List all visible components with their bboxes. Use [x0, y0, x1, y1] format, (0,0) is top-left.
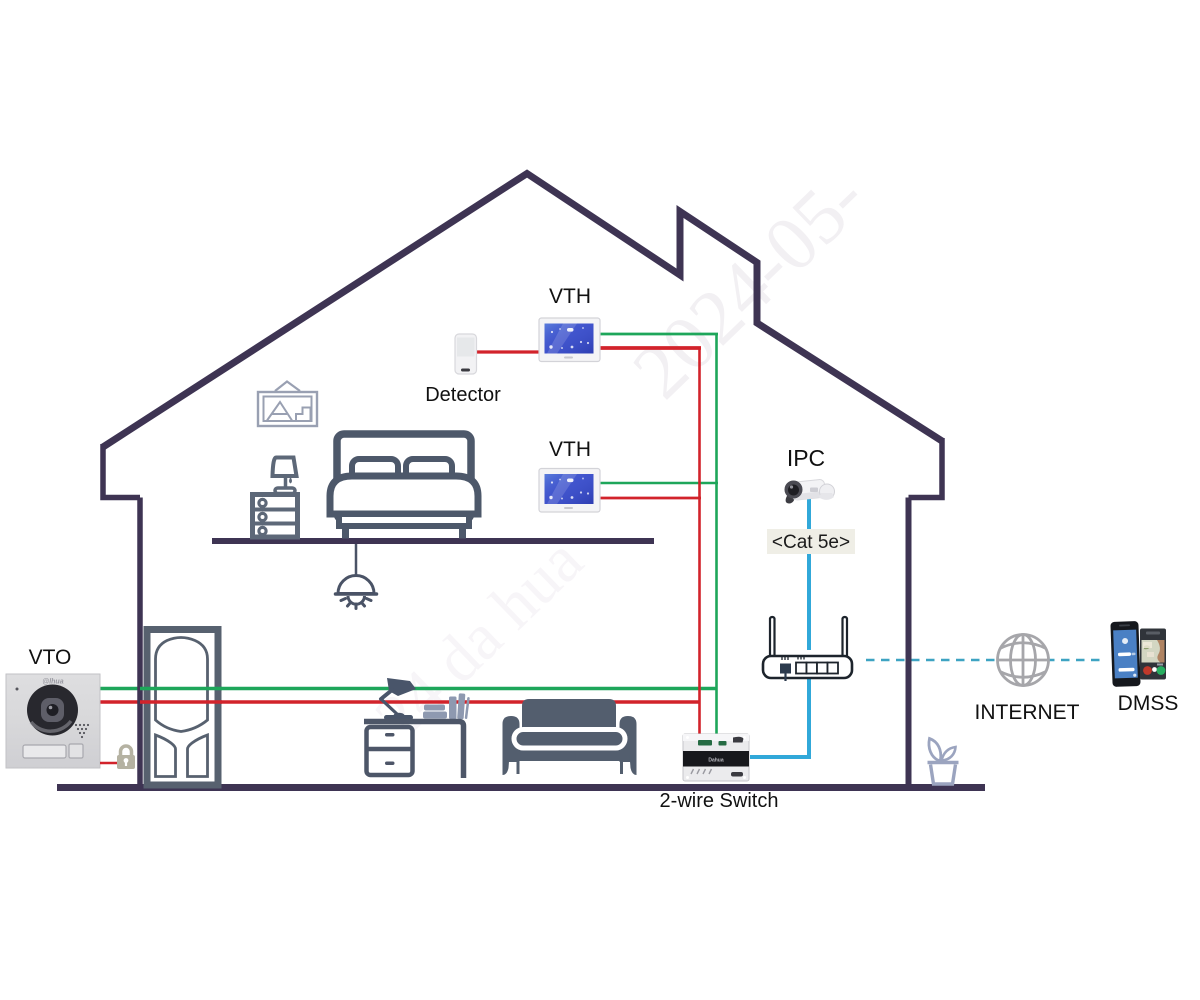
svg-text:Detector: Detector [425, 384, 501, 406]
svg-text:INTERNET: INTERNET [975, 701, 1080, 724]
svg-text:2-wire Switch: 2-wire Switch [660, 790, 779, 812]
svg-text:VTH: VTH [549, 438, 591, 461]
svg-text:IPC: IPC [787, 445, 825, 471]
svg-text:@lhua: @lhua [42, 679, 63, 686]
svg-text:<Cat 5e>: <Cat 5e> [772, 532, 850, 553]
svg-text:VTO: VTO [29, 646, 72, 669]
svg-text:VTH: VTH [549, 285, 591, 308]
svg-text:Dahua: Dahua [708, 758, 724, 764]
svg-text:DMSS: DMSS [1118, 692, 1179, 715]
